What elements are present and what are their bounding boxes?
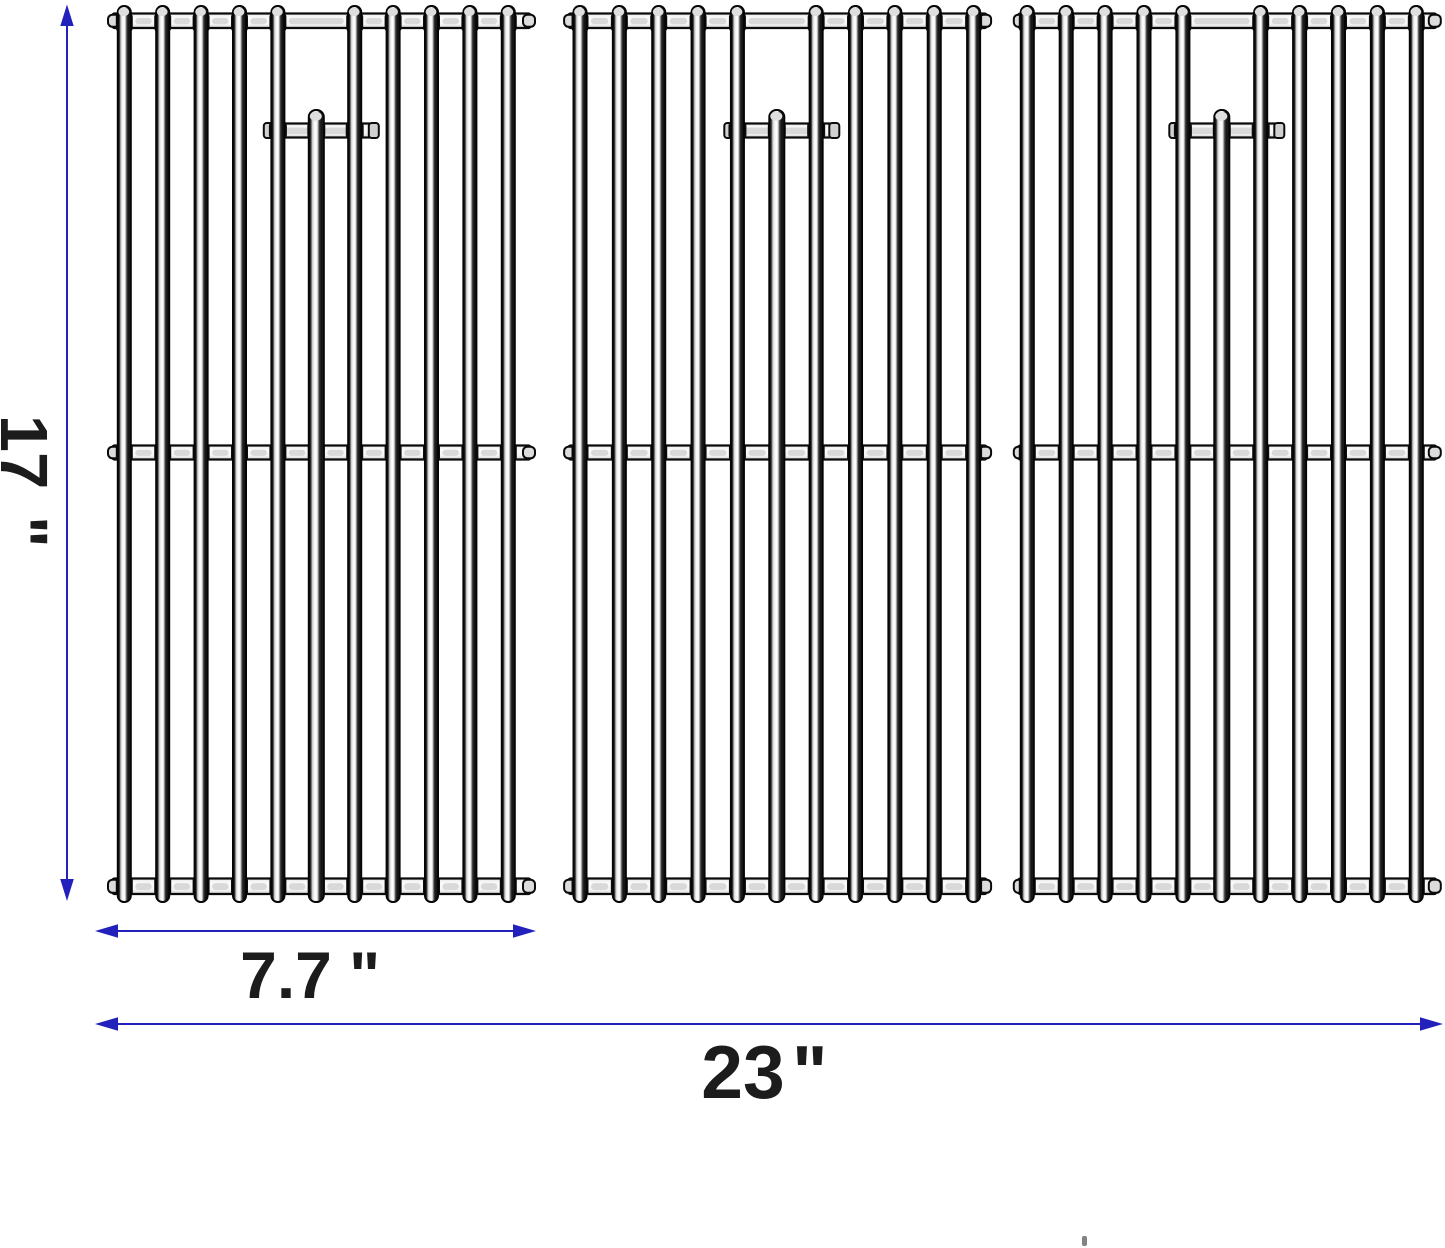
- svg-text:7.7: 7.7: [240, 938, 332, 1012]
- svg-text:": ": [792, 1030, 828, 1114]
- svg-text:": ": [0, 516, 61, 548]
- svg-text:": ": [349, 938, 380, 1012]
- svg-text:17: 17: [0, 415, 61, 490]
- svg-text:23: 23: [701, 1030, 784, 1114]
